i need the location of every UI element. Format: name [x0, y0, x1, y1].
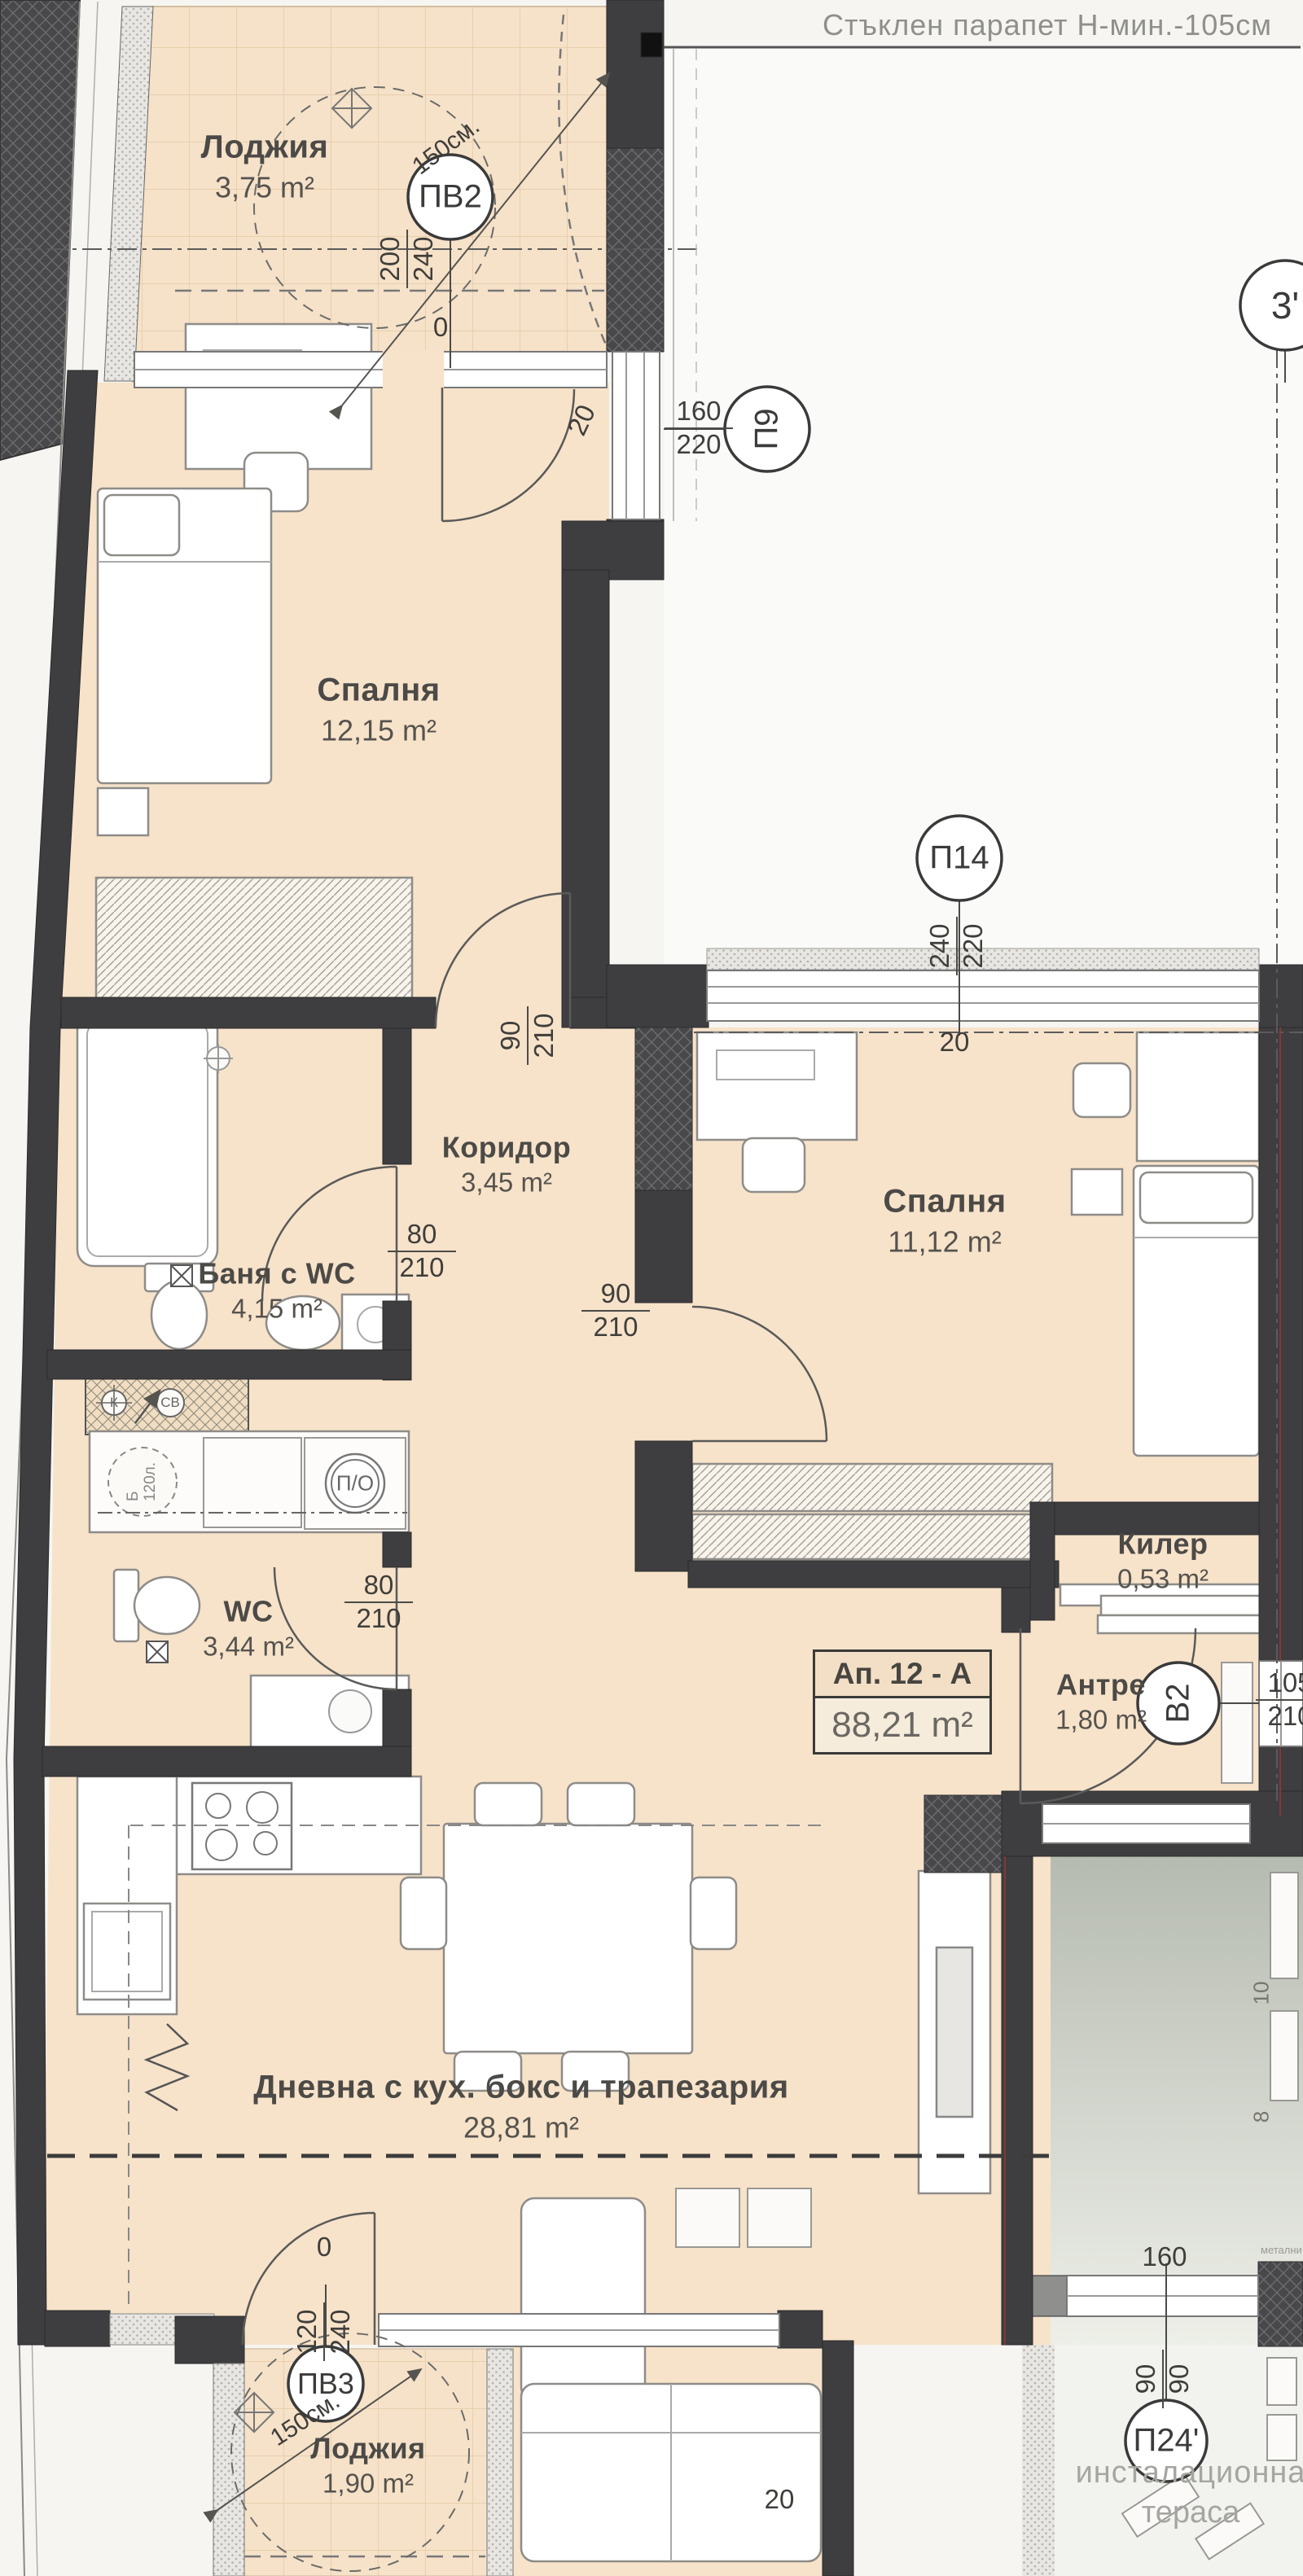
- room-label-loggia-bottom: Лоджия 1,90 m²: [310, 2432, 425, 2499]
- dim-terrace-window: 9090: [1132, 2350, 1194, 2408]
- metal-note: метални: [1261, 2244, 1303, 2256]
- wc-drain-icon: [145, 1640, 169, 1664]
- room-label-corridor: Коридор 3,45 m²: [442, 1131, 571, 1198]
- dim-0-top: 0: [433, 312, 448, 343]
- p9-window: [612, 352, 660, 519]
- apartment-number: Ап. 12 - А: [815, 1652, 989, 1698]
- dim-p9-window: 160220: [665, 397, 733, 459]
- kitchen-fridge: [84, 1904, 170, 2000]
- balcony-door-top-gap: [383, 350, 444, 389]
- shaft-block: [924, 1795, 1002, 1873]
- bathtub: [77, 1014, 217, 1266]
- dim-wc-door: 80210: [344, 1571, 413, 1633]
- dim-loggia-bottom-door: 120240: [293, 2302, 355, 2361]
- marker-p24: П24': [1134, 2423, 1200, 2460]
- room-label-living: Дневна с кух. бокс и трапезария 28,81 m²: [253, 2070, 788, 2145]
- dim-bedroom2-door: 90210: [581, 1280, 650, 1342]
- dim-balcony-door-top: 200240: [376, 230, 438, 288]
- marker-p9: П9: [749, 409, 786, 450]
- bedroom2-wardrobe1: [692, 1464, 1052, 1511]
- marker-p14: П14: [929, 840, 989, 877]
- room-label-bath: Баня с WC 4,15 m²: [198, 1257, 355, 1325]
- entry-cabinet: [1222, 1663, 1253, 1783]
- dining-table: [444, 1824, 692, 2053]
- tv-cabinet: [919, 1871, 990, 2193]
- entry-bottom-window: [1042, 1804, 1250, 1843]
- dim-terrace-width: 160: [1142, 2241, 1187, 2272]
- room-label-entry: Антре 1,80 m²: [1055, 1668, 1147, 1736]
- dim-0-bottom: 0: [317, 2232, 331, 2263]
- dim-p14-window: 240220: [926, 917, 988, 975]
- room-label-storage: Килер 0,53 m²: [1117, 1527, 1209, 1595]
- marker-sv: СВ: [160, 1395, 180, 1411]
- plan-drawing: [0, 0, 1303, 2576]
- room-label-bedroom1: Спалня 12,15 m²: [317, 672, 440, 748]
- parapet-note: Стъклен парапет Н-мин.-105см: [668, 8, 1272, 42]
- marker-pv2: ПВ2: [419, 179, 482, 216]
- dim-bath-door: 80210: [388, 1220, 456, 1282]
- marker-k: К: [110, 1395, 118, 1411]
- loggia-bottom-window: [379, 2314, 779, 2346]
- terrace-window: [1067, 2276, 1258, 2316]
- room-label-terrace: инсталационна тераса: [1076, 2456, 1303, 2530]
- room-label-loggia-top: Лоджия 3,75 m²: [201, 129, 329, 205]
- dim-20-bottom: 20: [765, 2484, 795, 2515]
- dim-side-8: 8: [1249, 2111, 1274, 2123]
- marker-axis3: 3': [1271, 283, 1299, 327]
- bedroom2-nightstand: [1072, 1169, 1122, 1215]
- living-right-wall: [1002, 1856, 1033, 2345]
- marker-po: П/О: [336, 1471, 374, 1496]
- bedroom2-wardrobe2: [692, 1514, 1052, 1559]
- dim-20-p14: 20: [940, 1027, 970, 1058]
- room-label-bedroom2: Спалня 11,12 m²: [883, 1184, 1006, 1260]
- dim-entry-door: 105210: [1256, 1669, 1303, 1731]
- floor-plan: Стъклен парапет Н-мин.-105см Лоджия 3,75…: [0, 0, 1303, 2576]
- apartment-area: 88,21 m²: [815, 1698, 989, 1752]
- bedroom1-bed: [98, 488, 271, 783]
- bedroom2-bed: [1134, 1166, 1259, 1456]
- room-label-wc: WC 3,44 m²: [203, 1595, 294, 1663]
- apartment-info-box: Ап. 12 - А 88,21 m²: [813, 1649, 992, 1755]
- marker-boiler: Б 120л.: [125, 1462, 160, 1501]
- bath-drain-icon: [169, 1264, 194, 1288]
- dim-side-10: 10: [1249, 1982, 1274, 2005]
- p14-window: [707, 970, 1259, 1021]
- marker-v2: В2: [1160, 1684, 1197, 1724]
- dim-bedroom1-door: 90210: [497, 1006, 559, 1065]
- bedroom1-wardrobe: [96, 878, 412, 1001]
- bedroom1-nightstand: [98, 788, 148, 835]
- bedroom1-right-wall: [562, 570, 609, 1027]
